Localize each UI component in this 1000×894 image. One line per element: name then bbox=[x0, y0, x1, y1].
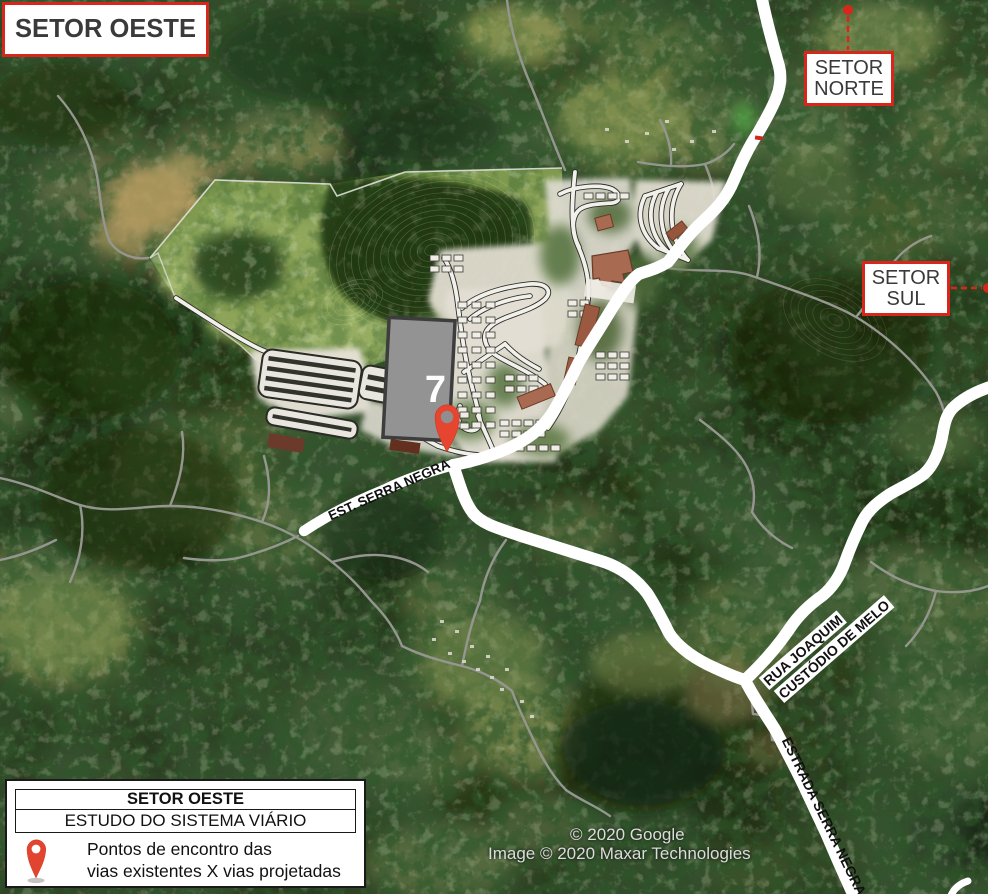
svg-text:7: 7 bbox=[425, 369, 446, 411]
